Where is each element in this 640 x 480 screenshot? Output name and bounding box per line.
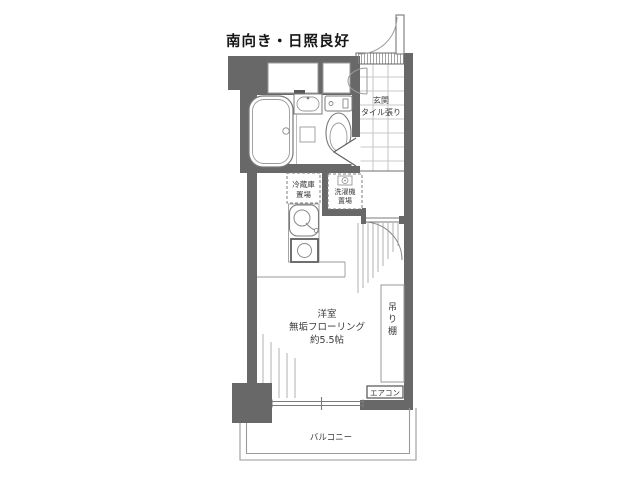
room-label-line2: 無垢フローリング [289, 321, 366, 333]
hanging-shelf: 吊 り 棚 [381, 285, 404, 382]
fridge-space: 冷蔵庫 置場 [287, 173, 320, 203]
shelf-label-char1: 吊 [388, 302, 397, 313]
entrance-label: 玄関 [373, 95, 389, 105]
bathtub-drain-icon [283, 128, 289, 134]
door-jamb-right [399, 216, 404, 224]
washer-dot-icon [344, 180, 346, 182]
room-label-line3: 約5.5帖 [310, 334, 345, 346]
pillar [232, 383, 272, 423]
wall-bottom-right [360, 400, 413, 410]
niche-right [323, 63, 350, 93]
room-label-line1: 洋室 [317, 308, 336, 320]
door-jamb-left [361, 216, 366, 224]
washer-label-line1: 洗濯機 [335, 187, 356, 196]
entrance-door-sill [356, 53, 404, 64]
fridge-label-line1: 冷蔵庫 [292, 179, 315, 189]
stove [291, 239, 318, 262]
floor-plan: 冷蔵庫 置場 洗濯機 置場 [0, 0, 640, 480]
meter-box-niches [268, 63, 350, 93]
bath-shelf [300, 127, 315, 142]
aircon-unit: エアコン [367, 386, 403, 398]
aircon-label: エアコン [370, 389, 400, 398]
washbasin-drain-icon [307, 97, 310, 100]
fridge-label-line2: 置場 [296, 189, 311, 199]
washer-label-line2: 置場 [338, 196, 352, 205]
wall-right [404, 53, 413, 410]
wall-left-lower [247, 170, 257, 386]
balcony-label: バルコニー [310, 433, 352, 443]
page-title: 南向き・日照良好 [226, 32, 350, 50]
shelf-label-char2: り [388, 314, 397, 325]
niche-left [268, 63, 318, 93]
entrance-floor-label: タイル張り [361, 108, 401, 117]
washer-space: 洗濯機 置場 [328, 174, 362, 209]
shelf-label-char3: 棚 [388, 325, 397, 337]
